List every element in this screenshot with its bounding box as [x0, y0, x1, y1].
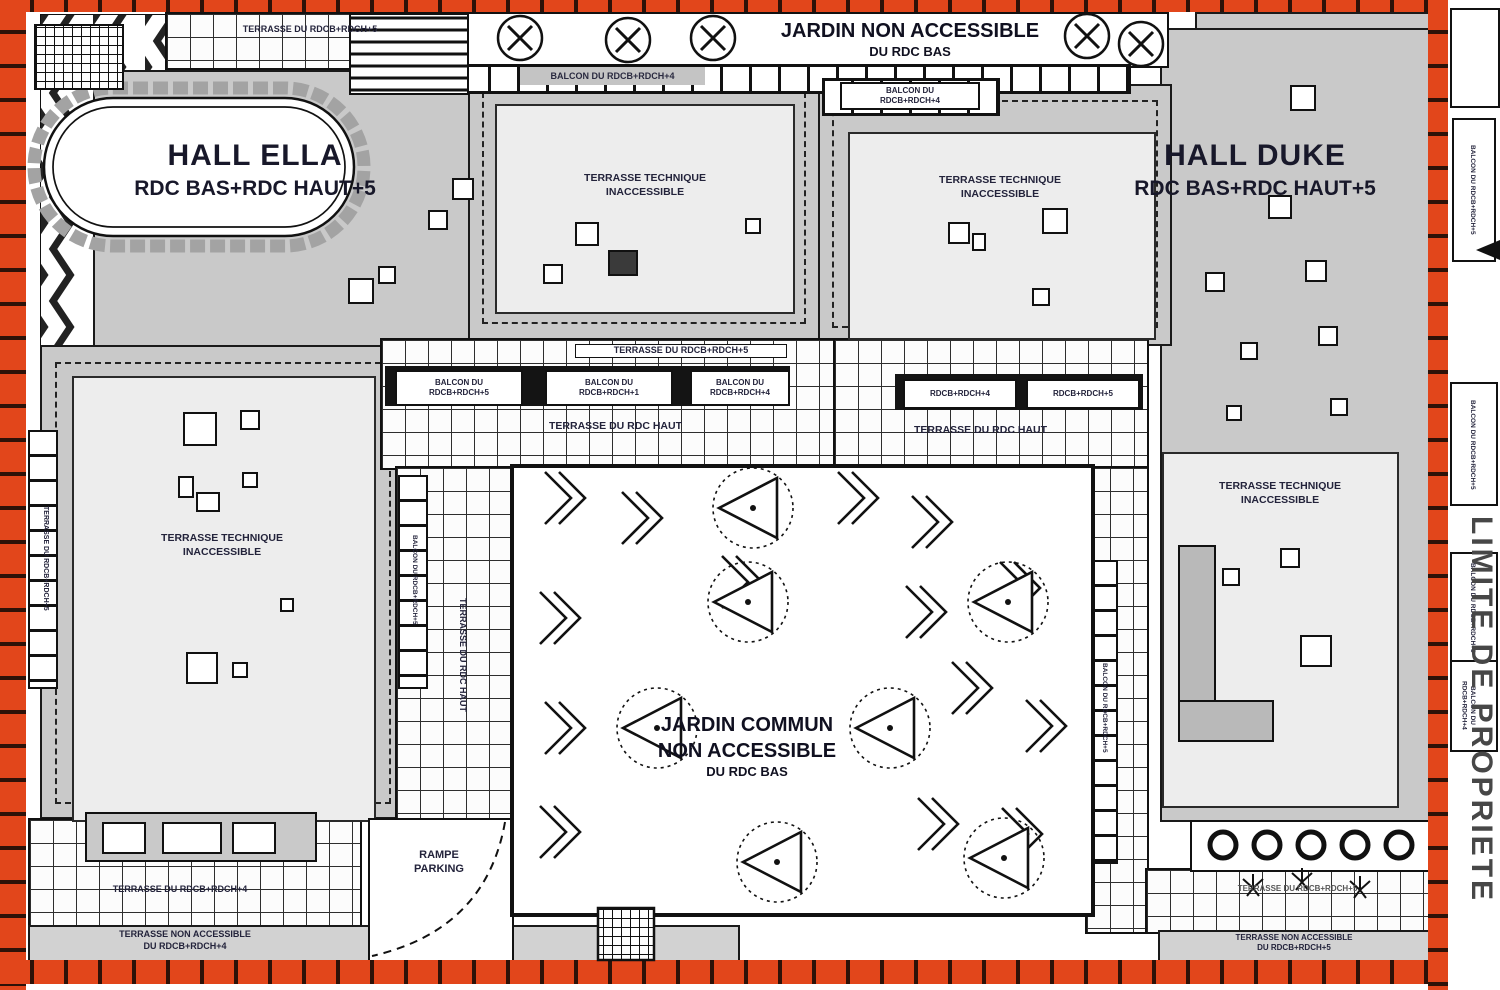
- balcony-left-2-line1: BALCON DU: [547, 378, 671, 388]
- balcony-right-1-text: RDCB+RDCH+4: [905, 389, 1015, 399]
- roof-vent: [1032, 288, 1050, 306]
- terrace-rdc-haut-vertical-text: TERRASSE DU RDC HAUT: [458, 598, 468, 712]
- property-line-right: [1428, 0, 1448, 990]
- ttech-a-label: TERRASSE TECHNIQUE INACCESSIBLE: [520, 172, 770, 199]
- roof-vent: [1318, 326, 1338, 346]
- ttech-d-line2: INACCESSIBLE: [1160, 494, 1400, 508]
- roof-vent: [972, 233, 986, 251]
- nonacc-right-line1: TERRASSE NON ACCESSIBLE: [1165, 933, 1423, 943]
- ttech-area-b: [848, 132, 1156, 340]
- terrace-mid-band-text: TERRASSE DU RDCB+RDCH+5: [576, 345, 786, 357]
- parking-ramp-line2: PARKING: [378, 862, 500, 876]
- terrace-top-band-text: TERRASSE DU RDCB+RDCH+5: [190, 24, 430, 36]
- roof-vent: [575, 222, 599, 246]
- duke-wall-horizontal: [1178, 700, 1274, 742]
- property-line-bottom: [0, 960, 1448, 984]
- terrace-bottom-right-text: TERRASSE DU RDCB+RDCH+5: [1180, 884, 1415, 894]
- property-line-top: [0, 0, 1448, 12]
- room-box: [162, 822, 222, 854]
- ttech-area-a: [495, 104, 795, 314]
- ttech-c-line2: INACCESSIBLE: [97, 546, 347, 560]
- ttech-b-line1: TERRASSE TECHNIQUE: [865, 174, 1135, 188]
- nonacc-left-label: TERRASSE NON ACCESSIBLE DU RDCB+RDCH+4: [55, 929, 315, 952]
- right-edge-balcony-1-text: BALCON DU RDCB+RDCH+5: [1469, 145, 1476, 235]
- balcony-top-band-text: BALCON DU RDCB+RDCH+4: [550, 71, 674, 81]
- balcony-left-3-line1: BALCON DU: [692, 378, 788, 388]
- balcony-vert-left-label: BALCON DU RDCB+RDCH+5: [402, 480, 418, 680]
- balcony-top-band-label: BALCON DU RDCB+RDCH+4: [520, 67, 705, 85]
- terrace-top-band-label: TERRASSE DU RDCB+RDCH+5: [190, 24, 430, 36]
- hall-duke-label: HALL DUKE RDC BAS+RDC HAUT+5: [1115, 136, 1395, 202]
- roof-vent: [178, 476, 194, 498]
- terrace-rdc-haut-right-label: TERRASSE DU RDC HAUT: [893, 424, 1068, 438]
- hall-duke-name: HALL DUKE: [1115, 136, 1395, 175]
- balcony-left-3-label: BALCON DU RDCB+RDCH+4: [690, 370, 790, 406]
- balcony-right-2-label: RDCB+RDCH+5: [1026, 379, 1140, 409]
- hall-ella-label: HALL ELLA RDC BAS+RDC HAUT+5: [115, 136, 395, 202]
- balcony-left-1-line1: BALCON DU: [397, 378, 521, 388]
- ttech-c-line1: TERRASSE TECHNIQUE: [97, 532, 347, 546]
- nonacc-right-label: TERRASSE NON ACCESSIBLE DU RDCB+RDCH+5: [1165, 933, 1423, 954]
- hall-ella-name: HALL ELLA: [115, 136, 395, 175]
- roof-vent: [745, 218, 761, 234]
- ttech-b-label: TERRASSE TECHNIQUE INACCESSIBLE: [865, 174, 1135, 201]
- garden-north-label: JARDIN NON ACCESSIBLE DU RDC BAS: [760, 18, 1060, 61]
- garden-central-area: [510, 464, 1095, 917]
- roof-vent: [242, 472, 258, 488]
- garden-central-line2: NON ACCESSIBLE: [597, 738, 897, 764]
- roof-vent: [1222, 568, 1240, 586]
- site-plan: TERRASSE DU RDCB+RDCH+5 JARDIN NON ACCES…: [0, 0, 1500, 990]
- balcony-top-small-label: BALCON DU RDCB+RDCH+4: [840, 82, 980, 110]
- balcony-left-3-line2: RDCB+RDCH+4: [692, 388, 788, 398]
- roof-vent: [183, 412, 217, 446]
- balcony-top-small-line2: RDCB+RDCH+4: [842, 96, 978, 106]
- nonacc-left-line2: DU RDCB+RDCH+4: [55, 941, 315, 953]
- balcony-vert-right-label: BALCON DU RDCB+RDCH+5: [1092, 568, 1108, 848]
- bush-row-band: [1190, 820, 1434, 872]
- terrace-rdc-haut-vertical-label: TERRASSE DU RDC HAUT: [448, 555, 468, 755]
- terrace-bottom-left-text: TERRASSE DU RDCB+RDCH+4: [70, 884, 290, 896]
- roof-vent: [948, 222, 970, 244]
- ttech-b-line2: INACCESSIBLE: [865, 188, 1135, 202]
- roof-vent: [378, 266, 396, 284]
- ttech-a-line1: TERRASSE TECHNIQUE: [520, 172, 770, 186]
- bottom-left-rooms: [85, 812, 317, 862]
- garden-central-line3: DU RDC BAS: [597, 764, 897, 781]
- roof-vent: [280, 598, 294, 612]
- terrace-rdc-haut-left-text: TERRASSE DU RDC HAUT: [528, 420, 703, 434]
- terrace-rdc-haut-right-text: TERRASSE DU RDC HAUT: [893, 424, 1068, 438]
- tiled-terrace-bottom-right: [1145, 868, 1434, 934]
- roof-vent: [543, 264, 563, 284]
- roof-vent: [1280, 548, 1300, 568]
- ttech-d-label: TERRASSE TECHNIQUE INACCESSIBLE: [1160, 480, 1400, 507]
- balcony-left-2-label: BALCON DU RDCB+RDCH+1: [545, 370, 673, 406]
- roof-vent: [608, 250, 638, 276]
- terrace-left-edge-text: TERRASSE DU RDCB+RDCH+5: [42, 506, 49, 611]
- balcony-left-1-line2: RDCB+RDCH+5: [397, 388, 521, 398]
- garden-central-label: JARDIN COMMUN NON ACCESSIBLE DU RDC BAS: [597, 712, 897, 781]
- tiled-terrace-top-strip: [165, 12, 434, 70]
- roof-vent: [1042, 208, 1068, 234]
- garden-north-line2: DU RDC BAS: [760, 44, 1060, 61]
- roof-vent: [1240, 342, 1258, 360]
- nonacc-left-line1: TERRASSE NON ACCESSIBLE: [55, 929, 315, 941]
- balcony-left-2-line2: RDCB+RDCH+1: [547, 388, 671, 398]
- terrace-bottom-right-label: TERRASSE DU RDCB+RDCH+5: [1180, 884, 1415, 894]
- ttech-a-line2: INACCESSIBLE: [520, 186, 770, 200]
- balcony-vert-left-text: BALCON DU RDCB+RDCH+5: [411, 535, 418, 625]
- balcony-vert-right-text: BALCON DU RDCB+RDCH+5: [1101, 663, 1108, 753]
- parking-ramp-area: [368, 818, 514, 964]
- roof-vent: [1205, 272, 1225, 292]
- ttech-d-line1: TERRASSE TECHNIQUE: [1160, 480, 1400, 494]
- roof-vent: [1305, 260, 1327, 282]
- nonacc-right-line2: DU RDCB+RDCH+5: [1165, 943, 1423, 953]
- roof-vent: [1330, 398, 1348, 416]
- roof-vent: [232, 662, 248, 678]
- room-box: [102, 822, 146, 854]
- garden-north-line1: JARDIN NON ACCESSIBLE: [760, 18, 1060, 44]
- terrace-left-edge-label: TERRASSE DU RDCB+RDCH+5: [32, 436, 50, 681]
- roof-vent: [196, 492, 220, 512]
- ttech-c-label: TERRASSE TECHNIQUE INACCESSIBLE: [97, 532, 347, 559]
- roof-vent: [1226, 405, 1242, 421]
- balcony-right-1-label: RDCB+RDCH+4: [903, 379, 1017, 409]
- terrace-rdc-haut-left-label: TERRASSE DU RDC HAUT: [528, 420, 703, 434]
- balcony-left-1-label: BALCON DU RDCB+RDCH+5: [395, 370, 523, 406]
- right-edge-balcony-1-label: BALCON DU RDCB+RDCH+5: [1460, 125, 1476, 255]
- roof-vent: [348, 278, 374, 304]
- roof-vent: [452, 178, 474, 200]
- hall-duke-levels: RDC BAS+RDC HAUT+5: [1115, 175, 1395, 202]
- parking-ramp-line1: RAMPE: [378, 848, 500, 862]
- roof-vent: [240, 410, 260, 430]
- balcony-right-2-text: RDCB+RDCH+5: [1028, 389, 1138, 399]
- room-box: [232, 822, 276, 854]
- roof-vent: [1290, 85, 1316, 111]
- right-edge-box-top: [1450, 8, 1500, 108]
- property-line-left: [0, 0, 26, 990]
- roof-vent: [428, 210, 448, 230]
- terrace-mid-band-label: TERRASSE DU RDCB+RDCH+5: [575, 344, 787, 358]
- property-line-label: LIMITE DE PROPRIETE: [1450, 430, 1498, 990]
- ttech-area-c: [72, 376, 376, 822]
- parking-ramp-label: RAMPE PARKING: [378, 848, 500, 877]
- property-line-text: LIMITE DE PROPRIETE: [1465, 516, 1498, 903]
- hall-ella-levels: RDC BAS+RDC HAUT+5: [115, 175, 395, 202]
- roof-vent: [1300, 635, 1332, 667]
- garden-central-line1: JARDIN COMMUN: [597, 712, 897, 738]
- balcony-top-small-line1: BALCON DU: [842, 86, 978, 96]
- roof-vent: [186, 652, 218, 684]
- terrace-bottom-left-label: TERRASSE DU RDCB+RDCH+4: [70, 884, 290, 896]
